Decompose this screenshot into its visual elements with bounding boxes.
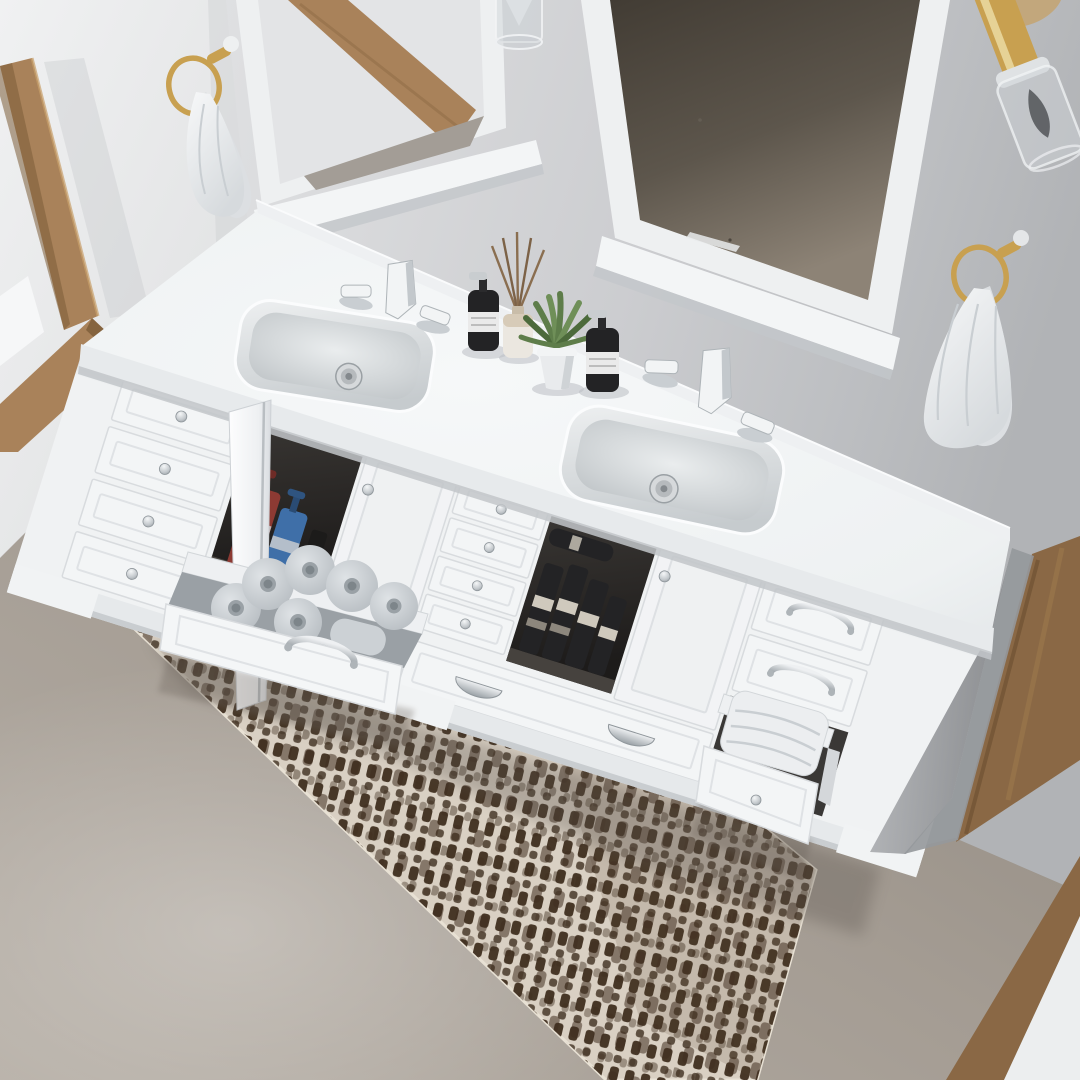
left-ring-plate <box>223 36 239 52</box>
pump-nozzle <box>588 310 607 318</box>
center-sconce-rim <box>496 35 542 49</box>
scene-canvas <box>0 0 1080 1080</box>
faucet-handle <box>645 360 678 374</box>
pot-rim <box>537 348 577 357</box>
pump-stem <box>479 279 487 292</box>
center-sconce <box>496 0 542 49</box>
reed <box>517 232 518 314</box>
mirror-speck <box>728 238 731 241</box>
mirror-speck <box>698 118 702 122</box>
bottle-label <box>468 312 499 332</box>
mirror-speck <box>779 179 782 182</box>
bottle-label <box>586 352 619 374</box>
bathroom-photo <box>0 0 1080 1080</box>
pump-nozzle <box>469 272 487 280</box>
faucet-handle <box>341 285 371 297</box>
drawer-knob <box>751 795 761 805</box>
pump-stem <box>598 317 606 330</box>
right-ring-plate <box>1013 230 1029 246</box>
